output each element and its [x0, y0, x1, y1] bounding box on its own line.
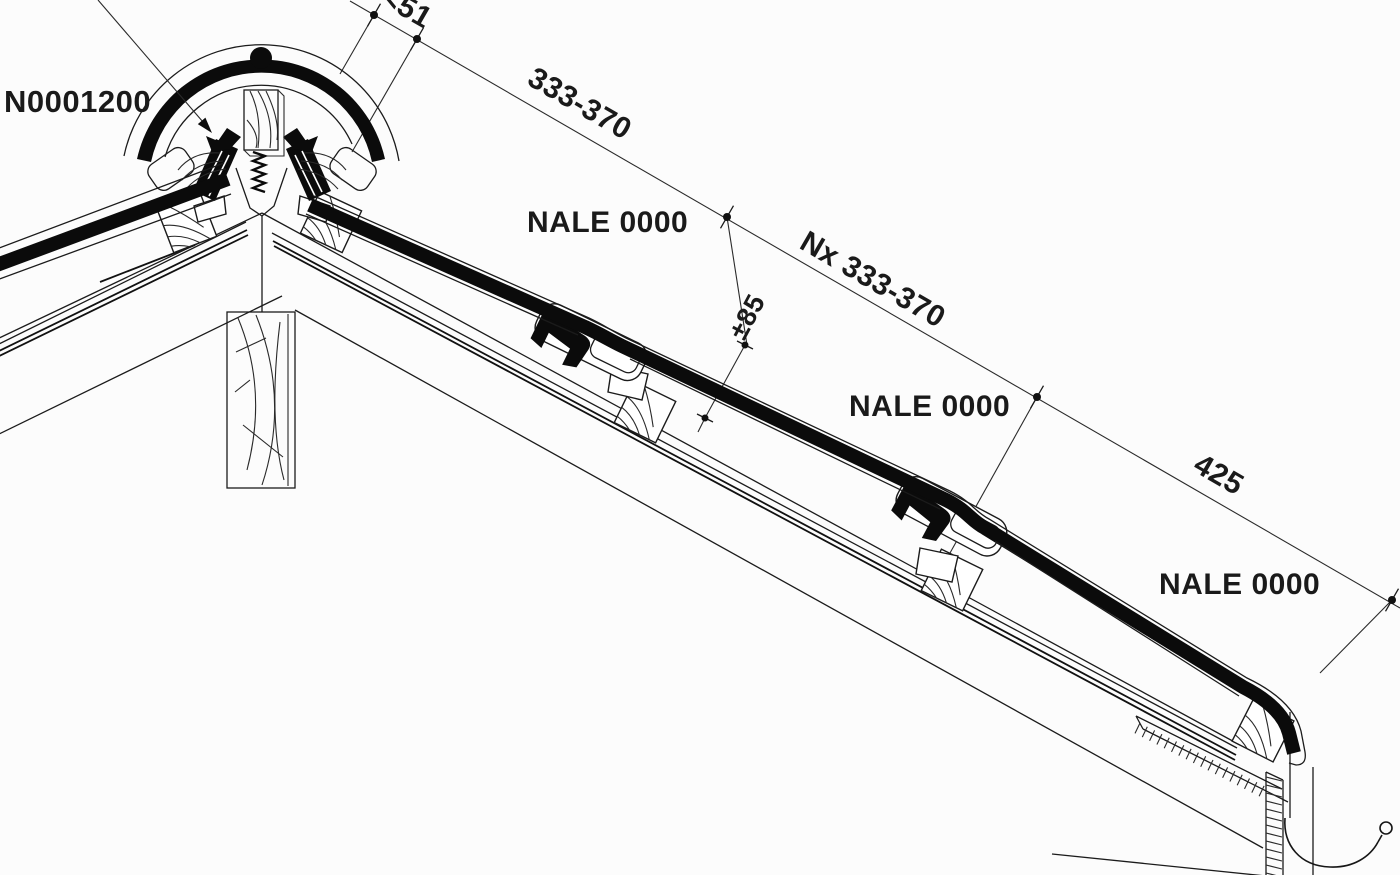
tile-label-2: NALE 0000 [849, 390, 1010, 423]
tile-label-3: NALE 0000 [1159, 568, 1320, 601]
technical-drawing-canvas: N0001200 NALE 0000 NALE 0000 NALE 0000 <… [0, 0, 1400, 875]
ridge-cap-knob [250, 47, 272, 69]
tile-label-1: NALE 0000 [527, 206, 688, 239]
part-number-label: N0001200 [4, 84, 151, 119]
